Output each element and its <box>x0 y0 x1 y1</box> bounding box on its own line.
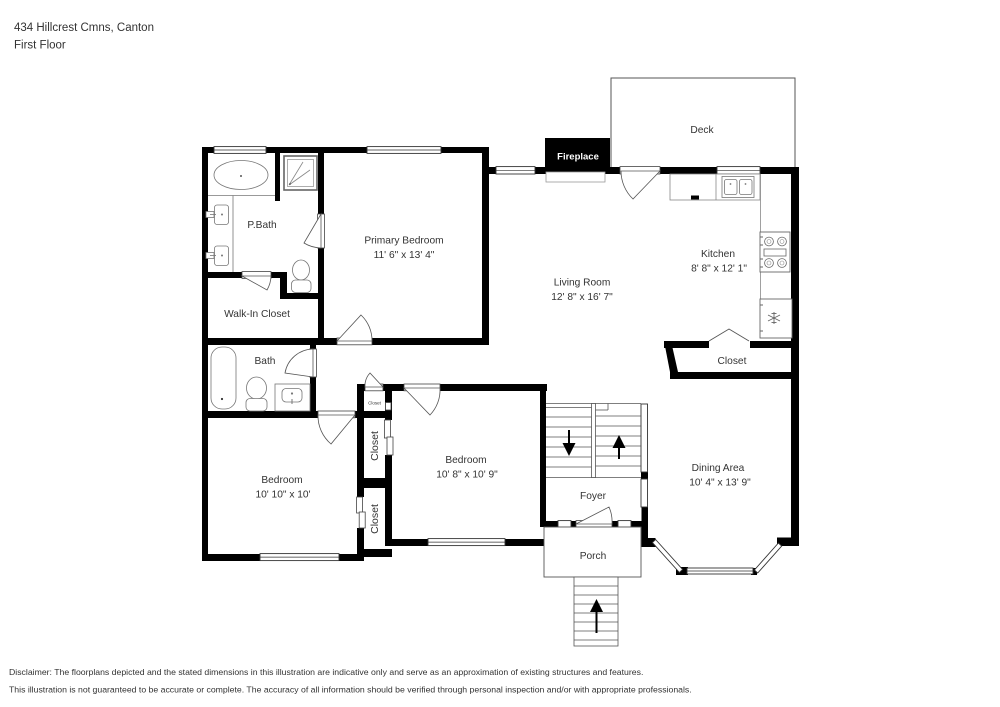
svg-text:Kitchen: Kitchen <box>701 249 735 260</box>
svg-text:10' 8" x 10' 9": 10' 8" x 10' 9" <box>436 470 498 481</box>
svg-text:Disclaimer: The floorplans dep: Disclaimer: The floorplans depicted and … <box>9 667 643 677</box>
svg-text:Porch: Porch <box>580 551 607 562</box>
svg-text:Living Room: Living Room <box>554 278 611 289</box>
svg-text:434 Hillcrest Cmns, Canton: 434 Hillcrest Cmns, Canton <box>14 22 154 34</box>
svg-text:P.Bath: P.Bath <box>247 220 276 231</box>
svg-text:First Floor: First Floor <box>14 40 66 52</box>
svg-text:10' 4" x 13' 9": 10' 4" x 13' 9" <box>689 478 751 489</box>
svg-text:Closet: Closet <box>368 401 382 406</box>
svg-text:8' 8" x 12' 1": 8' 8" x 12' 1" <box>691 264 747 275</box>
svg-text:Primary Bedroom: Primary Bedroom <box>364 236 443 247</box>
svg-text:Closet: Closet <box>718 356 747 367</box>
svg-text:Foyer: Foyer <box>580 491 607 502</box>
svg-text:11' 6" x 13' 4": 11' 6" x 13' 4" <box>374 250 435 261</box>
svg-text:Deck: Deck <box>690 125 714 136</box>
svg-text:12' 8" x 16' 7": 12' 8" x 16' 7" <box>551 292 613 303</box>
svg-text:This illustration is not guara: This illustration is not guaranteed to b… <box>9 685 692 695</box>
svg-text:Bedroom: Bedroom <box>261 475 302 486</box>
svg-text:Bedroom: Bedroom <box>445 455 486 466</box>
svg-text:Dining Area: Dining Area <box>692 463 745 474</box>
svg-text:Fireplace: Fireplace <box>557 152 599 163</box>
svg-text:Closet: Closet <box>369 504 381 534</box>
svg-text:10' 10" x 10': 10' 10" x 10' <box>255 490 310 501</box>
svg-text:Closet: Closet <box>369 431 381 461</box>
svg-text:Bath: Bath <box>255 356 276 367</box>
svg-text:Walk-In Closet: Walk-In Closet <box>224 309 290 320</box>
